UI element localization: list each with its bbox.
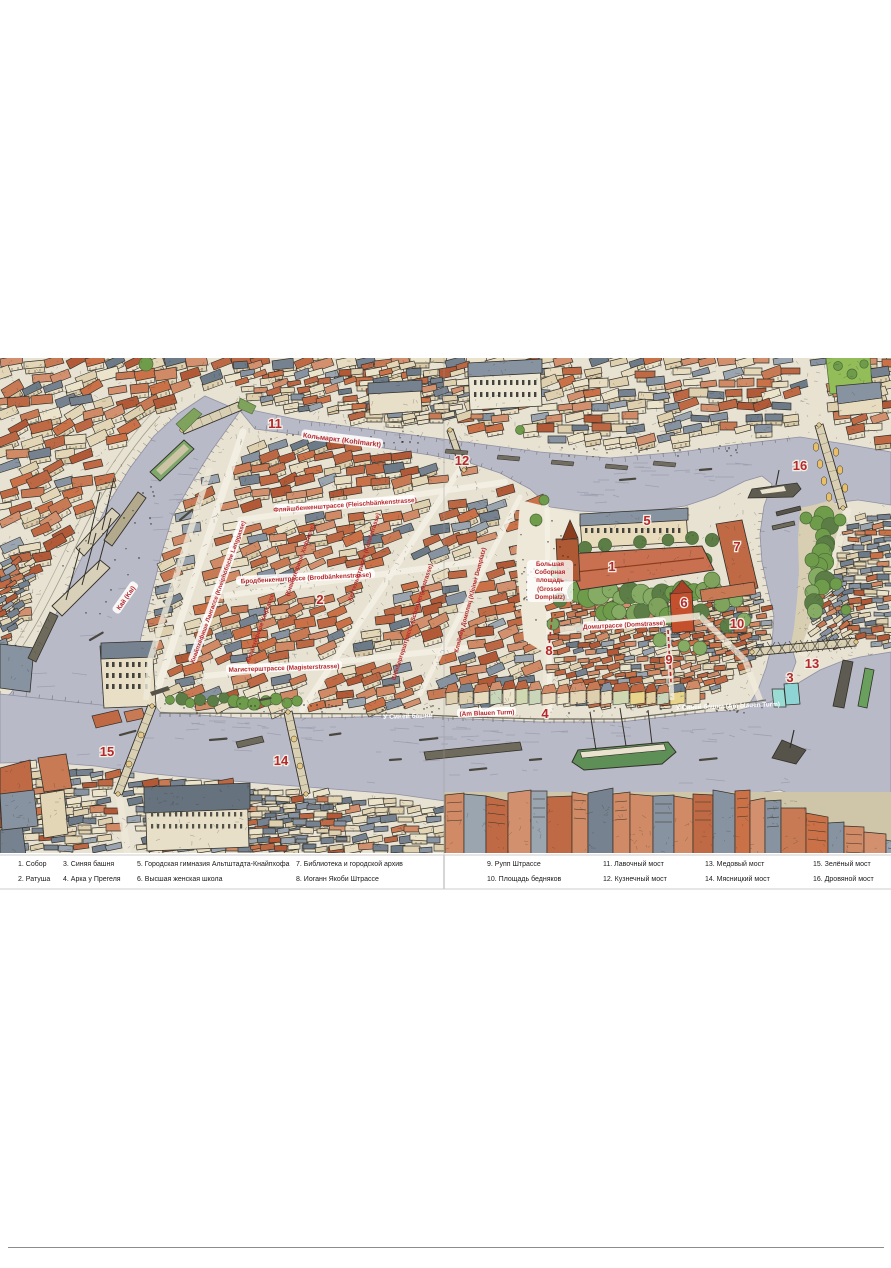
svg-text:Большая: Большая bbox=[536, 561, 564, 568]
svg-text:13. Медовый мост: 13. Медовый мост bbox=[705, 860, 765, 868]
svg-text:14: 14 bbox=[274, 753, 289, 768]
svg-text:13: 13 bbox=[805, 656, 819, 671]
svg-text:Соборная: Соборная bbox=[535, 569, 566, 576]
svg-text:площадь: площадь bbox=[536, 577, 564, 584]
svg-text:9. Рупп Штрассе: 9. Рупп Штрассе bbox=[487, 861, 541, 868]
svg-text:7. Библиотека и городской архи: 7. Библиотека и городской архив bbox=[296, 860, 403, 868]
svg-text:8. Иоганн Якоби Штрассе: 8. Иоганн Якоби Штрассе bbox=[296, 875, 379, 883]
svg-text:2. Ратуша: 2. Ратуша bbox=[18, 876, 50, 883]
svg-text:5: 5 bbox=[643, 513, 650, 528]
svg-text:11. Лавочный мост: 11. Лавочный мост bbox=[603, 860, 665, 868]
svg-text:12: 12 bbox=[455, 453, 469, 468]
svg-text:9: 9 bbox=[665, 652, 672, 667]
svg-text:16: 16 bbox=[793, 458, 807, 473]
svg-text:15. Зелёный мост: 15. Зелёный мост bbox=[813, 860, 871, 868]
svg-text:1. Собор: 1. Собор bbox=[18, 860, 47, 868]
svg-text:12. Кузнечный мост: 12. Кузнечный мост bbox=[603, 875, 668, 883]
svg-text:1: 1 bbox=[608, 559, 615, 574]
svg-text:3: 3 bbox=[786, 670, 793, 685]
svg-text:15: 15 bbox=[100, 744, 114, 759]
svg-text:5. Городская гимназия Альтштад: 5. Городская гимназия Альтштадта-Кнайпхо… bbox=[137, 860, 290, 868]
svg-text:7: 7 bbox=[733, 539, 740, 554]
svg-text:6: 6 bbox=[680, 595, 687, 610]
svg-text:10: 10 bbox=[730, 616, 744, 631]
svg-text:8: 8 bbox=[545, 643, 552, 658]
svg-text:2: 2 bbox=[316, 592, 323, 607]
svg-text:Domplatz): Domplatz) bbox=[535, 594, 565, 601]
svg-text:(Grosser: (Grosser bbox=[537, 586, 563, 593]
svg-text:11: 11 bbox=[268, 416, 282, 431]
svg-text:4: 4 bbox=[541, 706, 549, 721]
svg-text:16. Дровяной мост: 16. Дровяной мост bbox=[813, 875, 874, 883]
svg-text:6. Высшая женская школа: 6. Высшая женская школа bbox=[137, 876, 223, 883]
svg-text:3. Синяя башня: 3. Синяя башня bbox=[63, 860, 114, 868]
svg-text:4. Арка у Прегеля: 4. Арка у Прегеля bbox=[63, 876, 121, 883]
svg-text:14. Мясницкий мост: 14. Мясницкий мост bbox=[705, 875, 771, 883]
svg-text:10. Площадь бедняков: 10. Площадь бедняков bbox=[487, 875, 562, 883]
